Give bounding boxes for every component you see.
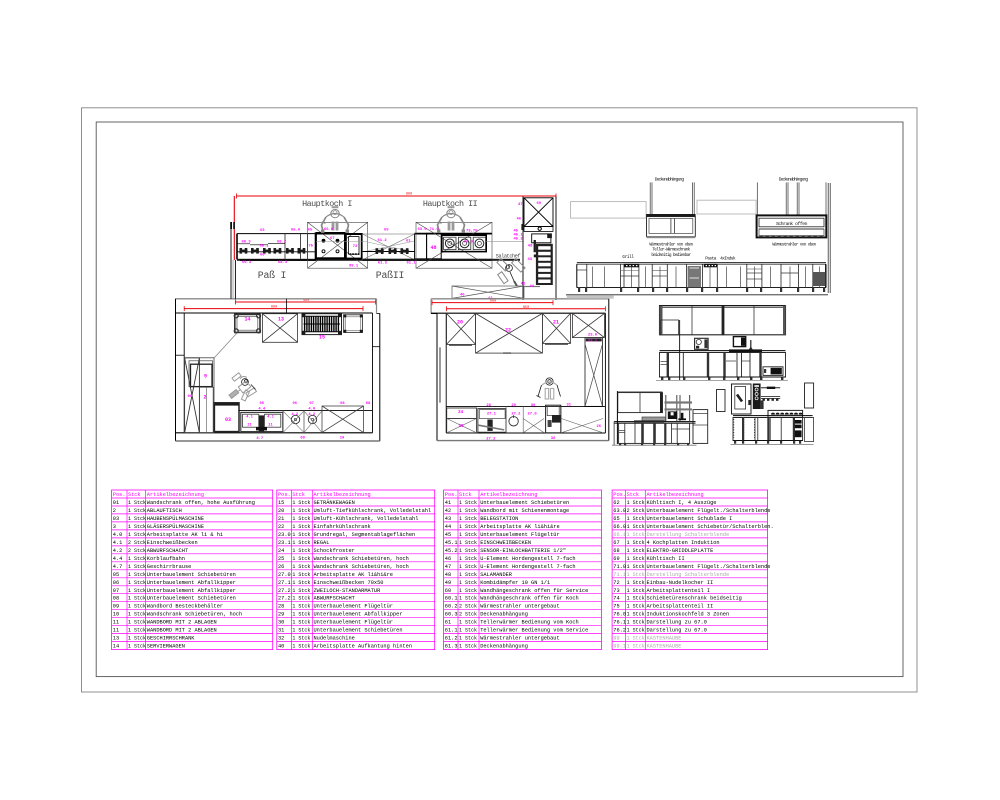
svg-text:1 Stck: 1 Stck (128, 588, 146, 594)
svg-text:06: 06 (113, 580, 119, 586)
svg-text:4.2: 4.2 (291, 413, 299, 417)
svg-text:Pos.: Pos. (613, 492, 626, 498)
svg-text:Deckenabhängung: Deckenabhängung (779, 177, 809, 183)
svg-text:4.0: 4.0 (113, 532, 123, 538)
svg-text:49: 49 (445, 580, 451, 586)
svg-text:Einbau-Nudelkocher II: Einbau-Nudelkocher II (647, 580, 714, 586)
svg-text:08: 08 (366, 402, 371, 406)
svg-text:1 Stck: 1 Stck (627, 620, 645, 626)
svg-text:Kühltisch I, 4 Auszüge: Kühltisch I, 4 Auszüge (647, 500, 717, 506)
svg-text:27.1: 27.1 (278, 580, 291, 586)
svg-text:99.1: 99.1 (613, 644, 626, 650)
svg-text:4.7: 4.7 (113, 564, 123, 570)
svg-text:71.0: 71.0 (613, 564, 626, 570)
svg-text:62: 62 (613, 500, 619, 506)
svg-text:60: 60 (260, 253, 265, 257)
svg-text:65.0: 65.0 (291, 229, 301, 233)
svg-text:Arbeitsplattenteil II: Arbeitsplattenteil II (647, 604, 714, 610)
svg-text:Arbeitsplatte Aufkantung hinte: Arbeitsplatte Aufkantung hinten (314, 644, 413, 650)
svg-text:Wandschrank offen, hohe Ausfüh: Wandschrank offen, hohe Ausführung (147, 500, 255, 506)
svg-text:2: 2 (203, 394, 206, 400)
svg-text:23.1: 23.1 (588, 340, 598, 344)
svg-text:1 Stck: 1 Stck (459, 588, 477, 594)
svg-text:69: 69 (384, 228, 389, 232)
svg-text:ELEKTRO-GRIDDLEPLATTE: ELEKTRO-GRIDDLEPLATTE (647, 548, 714, 554)
svg-text:72: 72 (613, 580, 619, 586)
svg-text:99.1: 99.1 (349, 265, 359, 269)
svg-text:1 Stck: 1 Stck (459, 508, 477, 514)
svg-text:27.0: 27.0 (278, 572, 291, 578)
svg-text:1 Stck: 1 Stck (128, 644, 146, 650)
svg-text:Wandhängeschrank offen für Ser: Wandhängeschrank offen für Service (480, 588, 588, 594)
svg-text:Schrank offen: Schrank offen (776, 221, 808, 227)
svg-text:1 Stck: 1 Stck (459, 532, 477, 538)
svg-text:76.0: 76.0 (464, 241, 474, 245)
svg-text:Unterbauelement Abfallkipper: Unterbauelement Abfallkipper (314, 612, 403, 618)
svg-text:61.1: 61.1 (445, 628, 458, 634)
svg-text:U-Element Hordengestell 7-fach: U-Element Hordengestell 7-fach (480, 564, 575, 570)
svg-text:69: 69 (613, 556, 619, 562)
svg-text:05: 05 (260, 402, 265, 406)
svg-text:1 Stck: 1 Stck (459, 548, 477, 554)
svg-text:75: 75 (309, 245, 314, 249)
svg-text:2 Stck: 2 Stck (459, 612, 477, 618)
svg-text:1 Stck: 1 Stck (128, 524, 146, 530)
svg-text:1 Stck: 1 Stck (128, 628, 146, 634)
svg-text:23.0: 23.0 (588, 334, 598, 338)
svg-text:Darstellung zu 67.0: Darstellung zu 67.0 (647, 628, 707, 634)
svg-text:Wandbord mit Schienenmontage: Wandbord mit Schienenmontage (480, 508, 569, 514)
svg-text:1 Stck: 1 Stck (292, 604, 310, 610)
svg-text:60: 60 (445, 588, 451, 594)
svg-text:01: 01 (113, 500, 119, 506)
svg-text:Unterbauelement Abfallkipper: Unterbauelement Abfallkipper (147, 588, 236, 594)
svg-text:1 Stck: 1 Stck (627, 588, 645, 594)
svg-text:66.1: 66.1 (613, 532, 626, 538)
svg-text:23.0: 23.0 (278, 532, 291, 538)
svg-text:73: 73 (613, 588, 619, 594)
svg-text:07: 07 (113, 588, 119, 594)
svg-text:Pos.: Pos. (445, 492, 458, 498)
svg-text:06: 06 (293, 402, 298, 406)
svg-text:BELEGSTATION: BELEGSTATION (480, 516, 518, 522)
svg-text:23.1: 23.1 (278, 540, 291, 546)
svg-text:1 Stck: 1 Stck (627, 532, 645, 538)
svg-text:Einschweißbecken 70x50: Einschweißbecken 70x50 (314, 580, 384, 586)
svg-text:72: 72 (353, 245, 358, 249)
svg-text:1 Stck: 1 Stck (627, 548, 645, 554)
svg-text:Stck: Stck (459, 492, 471, 498)
svg-text:1 Stck: 1 Stck (128, 500, 146, 506)
svg-text:1 Stck: 1 Stck (627, 564, 645, 570)
svg-text:69: 69 (537, 202, 542, 206)
svg-text:1 Stck: 1 Stck (459, 500, 477, 506)
svg-text:Darstellung Schalterblende: Darstellung Schalterblende (647, 572, 730, 578)
svg-text:66.0: 66.0 (324, 228, 334, 232)
svg-text:1 Stck: 1 Stck (292, 548, 310, 554)
svg-text:22: 22 (505, 327, 511, 333)
svg-text:1 Stck: 1 Stck (128, 612, 146, 618)
svg-text:1 Stck: 1 Stck (128, 564, 146, 570)
svg-text:09: 09 (113, 604, 119, 610)
svg-text:Kühltisch II: Kühltisch II (647, 556, 685, 562)
svg-text:Grill: Grill (622, 255, 634, 260)
svg-text:00: 00 (188, 395, 193, 399)
svg-text:1 Stck: 1 Stck (292, 588, 310, 594)
svg-text:1 Stck: 1 Stck (128, 532, 146, 538)
svg-text:Geschirrbrause: Geschirrbrause (147, 564, 192, 570)
svg-text:1 Stck: 1 Stck (292, 532, 310, 538)
svg-text:Unterbauelement Flügeltür: Unterbauelement Flügeltür (480, 532, 559, 538)
svg-text:1 Stck: 1 Stck (292, 596, 310, 602)
svg-text:68.3: 68.3 (278, 261, 288, 265)
svg-text:27.2: 27.2 (511, 412, 521, 416)
svg-text:Arbeitsplattenteil I: Arbeitsplattenteil I (647, 588, 711, 594)
svg-text:1 Stck: 1 Stck (292, 540, 310, 546)
svg-text:Wandschrank Schiebetüren, hoch: Wandschrank Schiebetüren, hoch (147, 612, 242, 618)
svg-text:600: 600 (490, 299, 496, 303)
svg-text:4.7: 4.7 (256, 437, 264, 441)
svg-text:68: 68 (613, 548, 619, 554)
svg-text:14: 14 (113, 644, 119, 650)
svg-text:71.1: 71.1 (613, 572, 626, 578)
svg-text:GLÄSERSPÜLMASCHINE: GLÄSERSPÜLMASCHINE (147, 523, 204, 530)
svg-text:27.2: 27.2 (486, 438, 496, 442)
svg-text:15: 15 (319, 334, 325, 340)
svg-text:Induktionskochfeld 3 Zonen: Induktionskochfeld 3 Zonen (647, 612, 730, 618)
svg-text:10: 10 (113, 612, 119, 618)
svg-text:1 Stck: 1 Stck (292, 572, 310, 578)
svg-text:1 Stck: 1 Stck (292, 636, 310, 642)
svg-text:41: 41 (445, 500, 451, 506)
svg-text:1 Stck: 1 Stck (459, 540, 477, 546)
svg-text:1 Stck: 1 Stck (128, 620, 146, 626)
svg-text:21: 21 (278, 516, 284, 522)
svg-text:25: 25 (278, 556, 284, 562)
svg-text:1 Stck: 1 Stck (292, 644, 310, 650)
svg-text:Artikelbezeichnung: Artikelbezeichnung (314, 492, 371, 498)
svg-text:2 Stck: 2 Stck (128, 548, 146, 554)
svg-text:1 Stck: 1 Stck (459, 620, 477, 626)
svg-text:1 Stck: 1 Stck (292, 556, 310, 562)
svg-text:61: 61 (406, 240, 411, 244)
svg-text:GESCHIRRSCHRANK: GESCHIRRSCHRANK (147, 636, 196, 642)
svg-text:66.0: 66.0 (613, 524, 626, 530)
svg-text:Wärmestrahler untergebaut: Wärmestrahler untergebaut (480, 604, 559, 610)
svg-text:1 Stck: 1 Stck (627, 572, 645, 578)
svg-text:1 Stck: 1 Stck (128, 516, 146, 522)
svg-text:24: 24 (278, 548, 284, 554)
svg-text:Teller-Wärmeschrank: Teller-Wärmeschrank (652, 248, 690, 253)
svg-text:03: 03 (225, 417, 231, 423)
svg-text:60.2: 60.2 (445, 604, 458, 610)
svg-text:61.2: 61.2 (378, 239, 388, 243)
svg-text:99: 99 (613, 636, 619, 642)
svg-text:63.0: 63.0 (613, 508, 626, 514)
svg-text:11: 11 (113, 628, 119, 634)
svg-text:45: 45 (445, 532, 451, 538)
svg-text:SENSOR-EINLOCHBATTERIE 1/2": SENSOR-EINLOCHBATTERIE 1/2" (480, 548, 566, 554)
svg-text:1 Stck: 1 Stck (292, 524, 310, 530)
svg-text:1 Stck: 1 Stck (128, 636, 146, 642)
svg-text:Schockfroster: Schockfroster (314, 548, 355, 554)
svg-text:Darstellung Schalterblende: Darstellung Schalterblende (647, 532, 730, 538)
svg-text:68.2: 68.2 (277, 241, 287, 245)
svg-text:46: 46 (517, 218, 522, 222)
svg-text:KASTENHAUBE: KASTENHAUBE (647, 636, 682, 642)
svg-text:76.1: 76.1 (613, 620, 626, 626)
svg-text:1 Stck: 1 Stck (128, 556, 146, 562)
svg-text:1 Stck: 1 Stck (627, 556, 645, 562)
svg-text:Stck: Stck (627, 492, 639, 498)
svg-text:76.2: 76.2 (613, 628, 626, 634)
svg-text:1 Stck: 1 Stck (459, 524, 477, 530)
svg-text:1 Stck: 1 Stck (627, 644, 645, 650)
svg-text:Artikelbezeichnung: Artikelbezeichnung (647, 492, 704, 498)
svg-text:4.2: 4.2 (113, 548, 123, 554)
svg-text:1 Stck: 1 Stck (459, 596, 477, 602)
svg-text:1 Stck: 1 Stck (627, 524, 645, 530)
svg-text:WANDBORD MIT 2 ABLAGEN: WANDBORD MIT 2 ABLAGEN (147, 628, 217, 634)
svg-text:31: 31 (278, 628, 284, 634)
svg-text:Arbeitsplatte AK li & hi: Arbeitsplatte AK li & hi (147, 532, 223, 538)
svg-text:1 Stck: 1 Stck (627, 596, 645, 602)
svg-text:68.1: 68.1 (260, 245, 270, 249)
svg-text:4.1: 4.1 (113, 540, 123, 546)
svg-text:1 Stck: 1 Stck (292, 612, 310, 618)
svg-text:ABWURFSCHACHT: ABWURFSCHACHT (314, 596, 355, 602)
svg-text:25: 25 (458, 425, 464, 429)
svg-text:1 Stck: 1 Stck (292, 564, 310, 570)
svg-text:1 Stck: 1 Stck (128, 508, 146, 514)
svg-text:32: 32 (551, 437, 556, 441)
svg-text:4 Kochplatten Induktion: 4 Kochplatten Induktion (647, 540, 720, 546)
svg-text:Wandschrank Schiebetüren, hoch: Wandschrank Schiebetüren, hoch (314, 556, 409, 562)
svg-text:20: 20 (278, 508, 284, 514)
svg-text:2 Stck: 2 Stck (128, 540, 146, 546)
svg-text:63.0: 63.0 (418, 228, 428, 232)
svg-text:9: 9 (204, 373, 207, 379)
svg-text:Deckenabhängung: Deckenabhängung (655, 177, 685, 183)
svg-text:Unterbauelement Schiebetüren: Unterbauelement Schiebetüren (480, 500, 569, 506)
svg-text:Arbeitsplatte AK li&hi&re: Arbeitsplatte AK li&hi&re (314, 572, 393, 578)
svg-text:4.2: 4.2 (308, 413, 316, 417)
svg-text:27.0: 27.0 (528, 412, 538, 416)
svg-text:75: 75 (613, 604, 619, 610)
svg-text:1 Stck: 1 Stck (459, 564, 477, 570)
svg-text:15: 15 (278, 500, 284, 506)
svg-text:26: 26 (278, 564, 284, 570)
svg-text:67: 67 (330, 237, 335, 241)
svg-text:61.2: 61.2 (445, 636, 458, 642)
svg-text:Pasta 4xInduk: Pasta 4xInduk (705, 256, 736, 261)
svg-text:1 Stck: 1 Stck (459, 556, 477, 562)
svg-text:40: 40 (460, 293, 465, 297)
svg-text:Paß I: Paß I (258, 270, 286, 281)
svg-text:1 Stck: 1 Stck (292, 516, 310, 522)
svg-text:ZWEILOCH-STANDARMATUR: ZWEILOCH-STANDARMATUR (314, 588, 382, 594)
svg-text:REGAL: REGAL (314, 540, 330, 546)
svg-text:600: 600 (271, 306, 277, 310)
svg-text:Einschweißbecken: Einschweißbecken (147, 540, 198, 546)
svg-text:Wärmestrahler untergebaut: Wärmestrahler untergebaut (480, 636, 559, 642)
svg-text:27.2: 27.2 (278, 588, 291, 594)
svg-text:Umluft-Tiefkühlschrank, Volled: Umluft-Tiefkühlschrank, Volledelstahl (314, 508, 432, 514)
svg-text:Tellerwärmer Bedienung vom Ser: Tellerwärmer Bedienung vom Service (480, 628, 588, 634)
svg-text:10: 10 (340, 437, 345, 441)
svg-text:13: 13 (278, 317, 284, 323)
svg-text:Einfahrkühlschrank: Einfahrkühlschrank (314, 524, 371, 530)
svg-text:GETRÄNKEWAGEN: GETRÄNKEWAGEN (314, 499, 355, 506)
svg-text:65: 65 (308, 229, 313, 233)
svg-text:Deckenabhängung: Deckenabhängung (480, 612, 528, 618)
svg-text:Stck: Stck (128, 492, 140, 498)
svg-text:Nudelmaschine: Nudelmaschine (314, 636, 355, 642)
svg-text:Artikelbezeichnung: Artikelbezeichnung (147, 492, 204, 498)
svg-text:24: 24 (458, 411, 464, 415)
svg-text:40: 40 (278, 644, 284, 650)
svg-text:48: 48 (445, 572, 451, 578)
svg-text:Deckenabhängung: Deckenabhängung (480, 644, 528, 650)
svg-text:4.1: 4.1 (267, 415, 275, 419)
svg-text:48: 48 (528, 244, 533, 248)
svg-text:11: 11 (268, 424, 273, 428)
svg-text:45.2: 45.2 (445, 548, 458, 554)
svg-text:1 Stck: 1 Stck (292, 620, 310, 626)
svg-text:1 Stck: 1 Stck (627, 540, 645, 546)
svg-text:14: 14 (244, 317, 250, 323)
svg-text:Wärmestrahler von oben: Wärmestrahler von oben (649, 242, 693, 247)
svg-text:Tellerwärmer Bedienung vom Koc: Tellerwärmer Bedienung vom Koch (480, 620, 579, 626)
svg-text:20: 20 (457, 319, 463, 325)
svg-text:4.1: 4.1 (246, 415, 254, 419)
svg-text:29: 29 (511, 404, 516, 408)
svg-text:60.1: 60.1 (445, 596, 458, 602)
svg-text:46: 46 (445, 556, 451, 562)
svg-text:07: 07 (309, 402, 314, 406)
svg-text:Stck: Stck (292, 492, 304, 498)
svg-text:1 Stck: 1 Stck (292, 500, 310, 506)
svg-text:Kombidämpfer 10 GN 1/1: Kombidämpfer 10 GN 1/1 (480, 580, 550, 586)
svg-text:26: 26 (597, 425, 602, 429)
svg-text:60.3: 60.3 (445, 612, 458, 618)
svg-text:60.3: 60.3 (242, 241, 252, 245)
svg-text:43: 43 (528, 258, 533, 262)
svg-text:2: 2 (113, 508, 116, 514)
svg-text:30: 30 (531, 404, 536, 408)
svg-text:13: 13 (113, 636, 119, 642)
svg-text:27.2: 27.2 (278, 596, 291, 602)
svg-text:1 Stck: 1 Stck (627, 628, 645, 634)
svg-text:47: 47 (518, 203, 523, 207)
svg-text:Pos.: Pos. (113, 492, 126, 498)
svg-text:Unterbauelement Schiebetüren: Unterbauelement Schiebetüren (314, 628, 403, 634)
svg-text:1 Stck: 1 Stck (459, 572, 477, 578)
svg-text:11: 11 (247, 424, 252, 428)
svg-text:Unterbauelement Schiebetüren: Unterbauelement Schiebetüren (147, 572, 236, 578)
svg-text:1 Stck: 1 Stck (627, 604, 645, 610)
svg-text:Unterbauelement Schiebetüren: Unterbauelement Schiebetüren (147, 596, 236, 602)
svg-text:1 Stck: 1 Stck (459, 636, 477, 642)
svg-text:1 Stck: 1 Stck (128, 572, 146, 578)
svg-text:4.4: 4.4 (113, 556, 123, 562)
svg-text:Unterbauelement Flügelt./Schal: Unterbauelement Flügelt./Schalterblende (647, 564, 771, 570)
svg-text:650: 650 (523, 306, 529, 310)
svg-text:1 Stck: 1 Stck (627, 516, 645, 522)
svg-text:Unterbauelement Schiebetür/Sch: Unterbauelement Schiebetür/Schalterblen. (647, 524, 774, 530)
svg-text:1 Stck: 1 Stck (459, 516, 477, 522)
svg-text:800: 800 (406, 193, 412, 197)
svg-text:30: 30 (278, 620, 284, 626)
svg-text:45.2: 45.2 (514, 238, 524, 242)
svg-text:Unterbauelement Flügeltür: Unterbauelement Flügeltür (314, 604, 393, 610)
svg-text:28: 28 (278, 604, 284, 610)
svg-text:1 Stck: 1 Stck (459, 644, 477, 650)
svg-text:2 Stck: 2 Stck (627, 508, 645, 514)
svg-text:45.1: 45.1 (445, 540, 458, 546)
svg-text:4.4: 4.4 (258, 407, 266, 411)
svg-text:48: 48 (431, 245, 437, 251)
svg-text:beidseitig bedienbar: beidseitig bedienbar (651, 253, 691, 258)
svg-text:31: 31 (567, 403, 572, 407)
svg-text:WANDBORD MIT 2 ABLAGEN: WANDBORD MIT 2 ABLAGEN (147, 620, 217, 626)
svg-text:SERVIERWAGEN: SERVIERWAGEN (147, 644, 185, 650)
svg-text:PaßII: PaßII (376, 270, 404, 281)
svg-text:HAUBENSPÜLMASCHINE: HAUBENSPÜLMASCHINE (147, 515, 204, 522)
svg-text:61.1: 61.1 (407, 262, 417, 266)
svg-text:1 Stck: 1 Stck (627, 612, 645, 618)
svg-text:43: 43 (445, 516, 451, 522)
svg-text:Artikelbezeichnung: Artikelbezeichnung (480, 492, 537, 498)
svg-text:SALAMANDER: SALAMANDER (480, 572, 513, 578)
svg-text:1 Stck: 1 Stck (128, 596, 146, 602)
svg-text:Unterbauelement Flügelt./Schal: Unterbauelement Flügelt./Schalterblende (647, 508, 771, 514)
svg-text:74: 74 (613, 596, 619, 602)
svg-text:61: 61 (445, 620, 451, 626)
svg-text:Wärmestrahler von oben: Wärmestrahler von oben (772, 242, 816, 247)
svg-text:Korblaufbahn: Korblaufbahn (147, 556, 185, 562)
svg-text:1 Stck: 1 Stck (627, 636, 645, 642)
svg-text:Darstellung zu 67.0: Darstellung zu 67.0 (647, 620, 707, 626)
svg-text:73,7%: 73,7% (466, 229, 478, 233)
svg-text:1 Stck: 1 Stck (292, 580, 310, 586)
svg-text:1 Stck: 1 Stck (627, 580, 645, 586)
svg-text:08: 08 (113, 596, 119, 602)
svg-text:Umluft-Kühlschrank, Volledelst: Umluft-Kühlschrank, Volledelstahl (314, 516, 419, 522)
svg-text:3: 3 (113, 524, 116, 530)
svg-text:22: 22 (278, 524, 284, 530)
svg-text:4.0: 4.0 (308, 407, 316, 411)
svg-text:Hauptkoch I: Hauptkoch I (302, 199, 352, 209)
svg-text:71.0: 71.0 (430, 228, 440, 232)
svg-text:Wandbord Besteckbehälter: Wandbord Besteckbehälter (147, 604, 223, 610)
svg-text:28: 28 (486, 404, 491, 408)
svg-text:ABWURFSCHACHT: ABWURFSCHACHT (147, 548, 188, 554)
svg-text:EINSCHWEIßBECKEN: EINSCHWEIßBECKEN (480, 540, 531, 546)
svg-text:1 Stck: 1 Stck (128, 604, 146, 610)
svg-text:1 Stck: 1 Stck (292, 508, 310, 514)
svg-text:61.3: 61.3 (378, 262, 388, 266)
svg-text:42: 42 (445, 508, 451, 514)
svg-text:1 Stck: 1 Stck (459, 580, 477, 586)
svg-text:27.1: 27.1 (487, 412, 497, 416)
svg-text:29: 29 (278, 612, 284, 618)
svg-text:ABLAUFTISCH: ABLAUFTISCH (147, 508, 182, 514)
svg-text:Unterbauelement Abfallkipper: Unterbauelement Abfallkipper (147, 580, 236, 586)
svg-text:U-Element Hordengestell 7-fach: U-Element Hordengestell 7-fach (480, 556, 575, 562)
svg-text:44: 44 (530, 285, 535, 289)
svg-text:60.3: 60.3 (242, 261, 252, 265)
